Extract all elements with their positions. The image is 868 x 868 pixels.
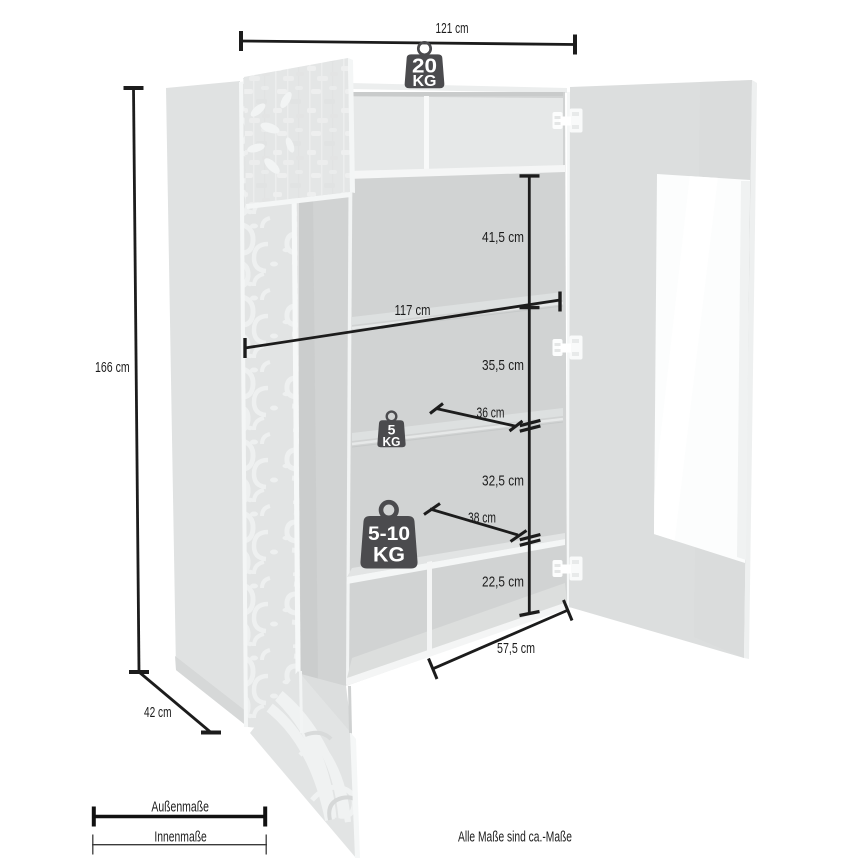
svg-text:Innenmaße: Innenmaße xyxy=(154,829,206,845)
svg-text:166 cm: 166 cm xyxy=(95,360,130,376)
svg-text:35,5 cm: 35,5 cm xyxy=(482,358,524,374)
svg-text:57,5 cm: 57,5 cm xyxy=(497,641,535,657)
svg-text:36 cm: 36 cm xyxy=(477,406,505,422)
svg-text:Alle Maße sind ca.-Maße: Alle Maße sind ca.-Maße xyxy=(458,830,572,846)
svg-text:121 cm: 121 cm xyxy=(436,21,469,37)
svg-text:KG: KG xyxy=(413,73,437,90)
svg-text:5-10: 5-10 xyxy=(368,523,410,545)
svg-text:42 cm: 42 cm xyxy=(144,705,172,721)
svg-text:32,5 cm: 32,5 cm xyxy=(482,474,524,490)
svg-text:38 cm: 38 cm xyxy=(468,511,496,527)
svg-text:41,5 cm: 41,5 cm xyxy=(482,230,524,246)
svg-text:KG: KG xyxy=(373,544,405,567)
svg-text:117 cm: 117 cm xyxy=(395,303,431,319)
svg-text:22,5 cm: 22,5 cm xyxy=(482,575,524,591)
svg-text:Außenmaße: Außenmaße xyxy=(151,800,209,816)
svg-text:KG: KG xyxy=(383,435,401,449)
